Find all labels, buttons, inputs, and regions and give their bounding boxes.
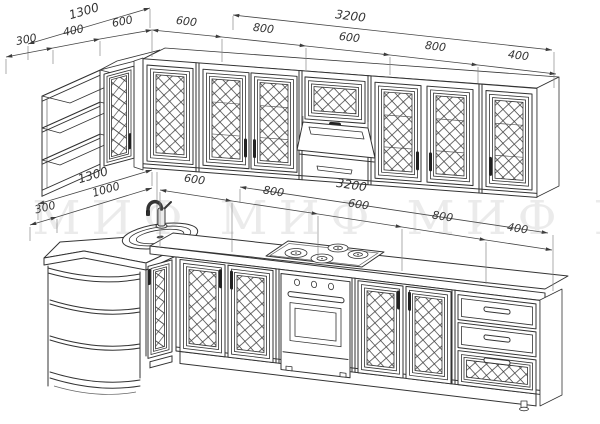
dim-label: 600 bbox=[111, 13, 134, 30]
oven-knob bbox=[328, 283, 333, 290]
dim-label: 800 bbox=[424, 39, 446, 54]
dim-label: 1300 bbox=[67, 0, 101, 22]
kitchen-technical-drawing: 1300 300 400 600 3200 600 800 600 800 40… bbox=[0, 0, 600, 424]
wall-run-side-panel bbox=[537, 77, 559, 197]
wall-cabinets bbox=[42, 48, 559, 197]
dim-label: 600 bbox=[338, 30, 360, 45]
wall-cabinet-door bbox=[147, 65, 193, 164]
drawer-unit bbox=[458, 295, 536, 394]
corner-sink-cabinet bbox=[146, 260, 172, 368]
oven-knob bbox=[311, 281, 316, 288]
wall-cabinet-door bbox=[203, 69, 249, 168]
base-cabinet-door bbox=[180, 259, 225, 356]
door-handle bbox=[129, 133, 132, 150]
base-run-side-panel bbox=[540, 289, 562, 406]
dim-label: 600 bbox=[175, 14, 197, 29]
base-open-shelf-unit bbox=[48, 266, 140, 394]
dim-label: 400 bbox=[62, 22, 85, 39]
wall-cabinet-door bbox=[375, 82, 421, 181]
kitchen-drawing-page: 1300 300 400 600 3200 600 800 600 800 40… bbox=[0, 0, 600, 424]
adjustable-foot bbox=[520, 401, 529, 411]
wall-cabinet-door bbox=[427, 86, 473, 185]
door-handle bbox=[148, 269, 151, 286]
corner-wall-cabinet bbox=[104, 58, 143, 170]
dim-label: 600 bbox=[183, 171, 206, 187]
wall-cabinet-door bbox=[486, 91, 532, 190]
base-cabinet-door bbox=[228, 265, 273, 362]
dim-label: 300 bbox=[15, 31, 38, 48]
oven bbox=[281, 274, 350, 378]
base-cabinet-door bbox=[358, 281, 403, 378]
dim-label: 400 bbox=[507, 48, 529, 63]
base-cabinet-door bbox=[406, 286, 451, 383]
oven-knob bbox=[294, 279, 299, 286]
dim-label: 800 bbox=[252, 21, 274, 36]
watermark-text: МИФ МИФ МИФ МИФ МИФ bbox=[0, 191, 600, 246]
wall-cabinet-door bbox=[251, 73, 297, 172]
dim-label: 3200 bbox=[334, 7, 366, 25]
